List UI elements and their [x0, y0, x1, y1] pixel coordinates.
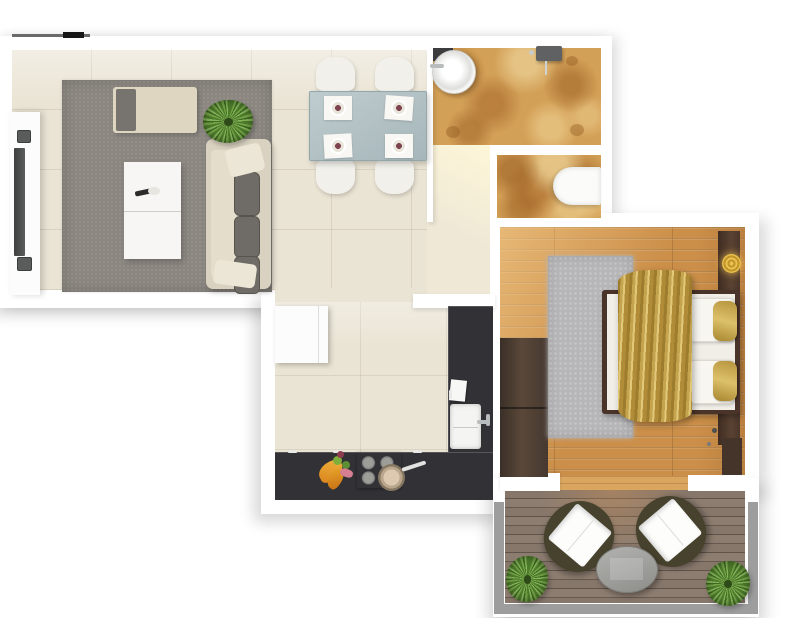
- dining-chair: [375, 57, 414, 91]
- dining-chair: [316, 160, 355, 194]
- gold-throw-blanket: [618, 270, 692, 422]
- place-setting: [385, 134, 413, 158]
- balcony-door-threshold: [560, 476, 688, 490]
- speaker-bottom: [17, 257, 32, 271]
- nightstand: [722, 438, 742, 475]
- dining-chair: [316, 57, 355, 91]
- wardrobe: [500, 338, 548, 477]
- floor-spot: [566, 56, 578, 66]
- balcony-railing-bottom: [494, 604, 758, 614]
- gold-pillow: [713, 301, 737, 341]
- place-setting: [324, 96, 352, 120]
- shower-knob: [529, 50, 534, 55]
- round-basin: [432, 50, 476, 94]
- balcony-railing-left: [494, 502, 504, 614]
- window-curtain-bar: [63, 32, 84, 38]
- kitchen-sink: [450, 404, 481, 449]
- coffee-table: [124, 162, 181, 259]
- cabinet-handle: [288, 450, 297, 453]
- coffee-table-decor-bowl: [148, 187, 160, 195]
- shower-pipe: [545, 61, 547, 75]
- plum: [337, 451, 344, 458]
- floor-spot: [446, 126, 460, 138]
- place-setting: [384, 95, 414, 121]
- place-setting: [323, 133, 352, 158]
- basin-faucet: [430, 64, 444, 68]
- sofa-cushion: [234, 216, 260, 258]
- floor-plan-render: [0, 0, 800, 618]
- tv: [14, 148, 25, 256]
- floor-spot: [570, 124, 584, 136]
- daybed-pillow: [116, 89, 136, 131]
- sofa-cushion: [234, 172, 260, 216]
- toilet: [553, 167, 601, 205]
- nightstand-decor: [707, 442, 711, 446]
- shower-fixture: [536, 46, 562, 61]
- cabinet-handle: [449, 390, 452, 399]
- balcony-railing-right: [748, 502, 758, 614]
- balcony-door-sill-right: [688, 475, 748, 491]
- speaker-top: [17, 130, 31, 143]
- kitchen-faucet: [486, 414, 490, 426]
- gold-wall-ornament: [722, 254, 741, 273]
- balcony-oval-table: [596, 546, 658, 593]
- hallway-light-glow: [427, 145, 490, 275]
- dining-chair: [375, 160, 414, 194]
- refrigerator: [275, 306, 328, 363]
- gold-pillow: [713, 361, 737, 401]
- cabinet-handle: [413, 450, 422, 453]
- nightstand-decor: [712, 428, 717, 433]
